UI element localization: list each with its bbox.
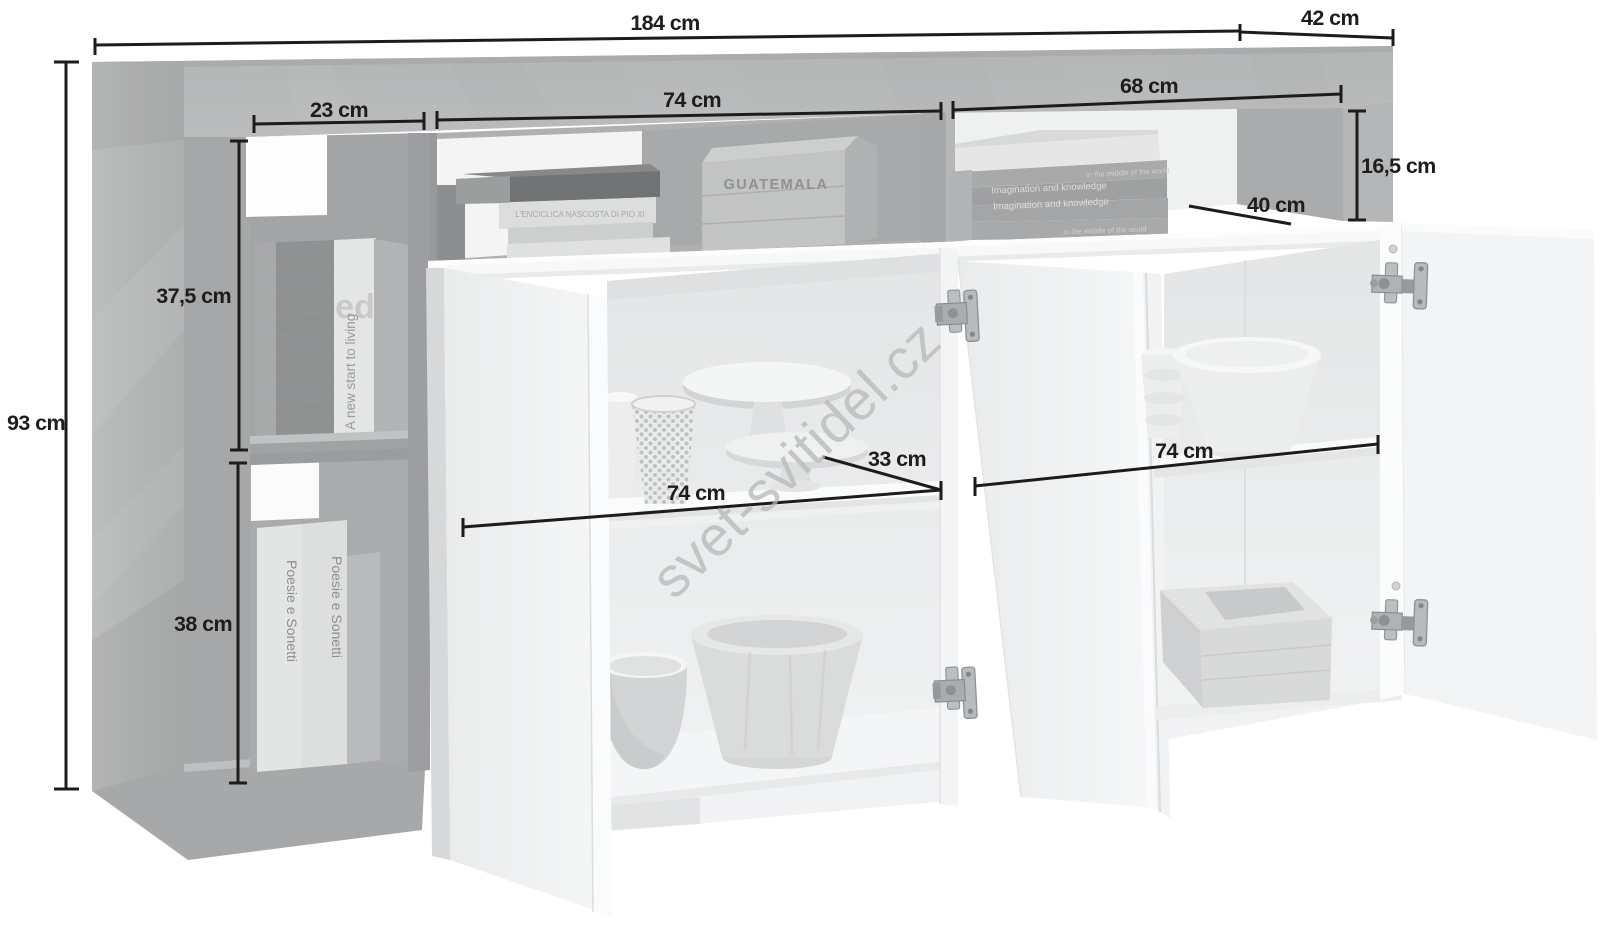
svg-text:68 cm: 68 cm [1120,74,1178,98]
svg-text:23 cm: 23 cm [310,98,368,122]
svg-text:A new start to living: A new start to living [343,314,358,430]
svg-text:74 cm: 74 cm [663,88,721,112]
svg-text:74 cm: 74 cm [1155,439,1213,463]
svg-text:GUATEMALA: GUATEMALA [723,177,828,193]
svg-text:93 cm: 93 cm [7,411,65,435]
svg-text:184 cm: 184 cm [630,11,699,35]
svg-text:33 cm: 33 cm [868,447,926,471]
svg-text:16,5 cm: 16,5 cm [1361,154,1436,178]
svg-text:Poesie e Sonetti: Poesie e Sonetti [329,556,345,658]
svg-text:37,5 cm: 37,5 cm [156,284,231,308]
svg-text:L'ENCICLICA NASCOSTA DI PIO XI: L'ENCICLICA NASCOSTA DI PIO XI [515,210,644,219]
svg-text:40 cm: 40 cm [1247,193,1305,217]
svg-text:42 cm: 42 cm [1301,6,1359,30]
svg-text:38 cm: 38 cm [174,612,232,636]
svg-text:Poesie e Sonetti: Poesie e Sonetti [284,560,300,662]
